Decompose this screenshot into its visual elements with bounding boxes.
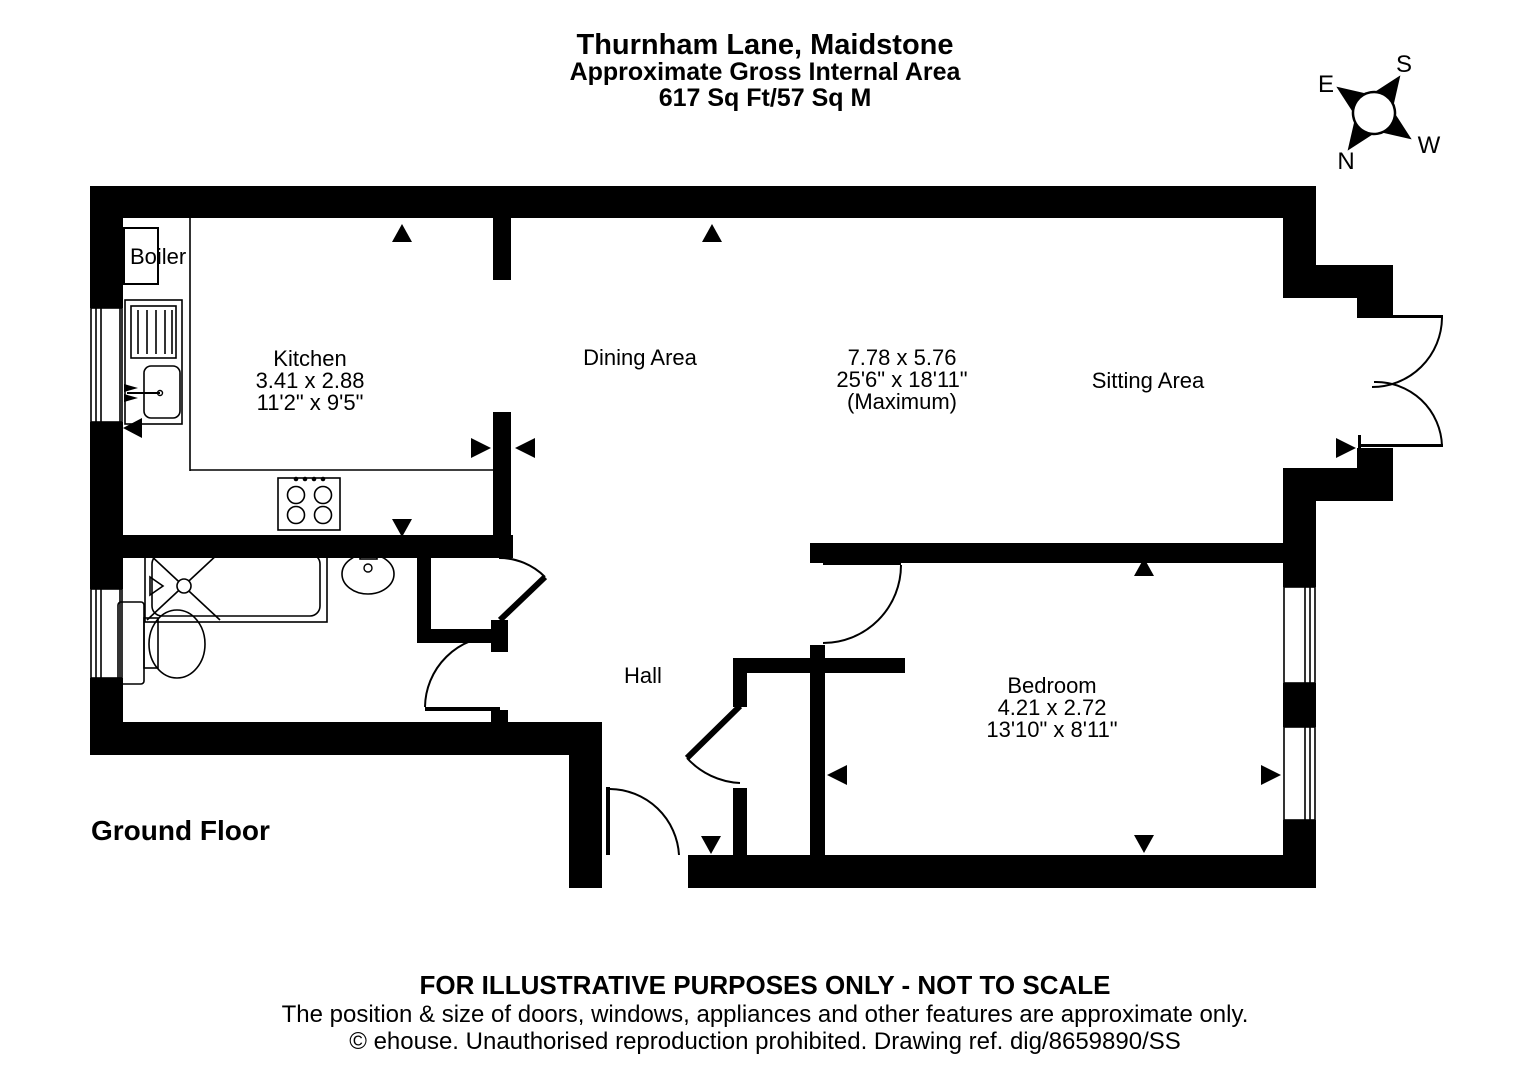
wall-segment	[1283, 468, 1393, 501]
wall-segment	[810, 543, 1285, 563]
sitting-area-label: Sitting Area	[1092, 368, 1205, 393]
measure-arrow-left-icon	[515, 438, 535, 458]
measure-arrow-down-icon	[392, 519, 412, 537]
page-subtitle: Approximate Gross Internal Area	[570, 58, 962, 86]
wall-segment	[569, 750, 602, 888]
wall-segment	[1283, 501, 1316, 587]
wall-segment	[733, 788, 747, 855]
title-block: Thurnham Lane, Maidstone Approximate Gro…	[570, 29, 962, 112]
measure-arrow-down-icon	[701, 836, 721, 854]
toilet	[118, 602, 205, 684]
wall-segment	[417, 545, 431, 643]
kitchen-sink	[124, 300, 182, 424]
bedroom-window-upper	[1284, 587, 1315, 683]
dining-area-label: Dining Area	[583, 345, 698, 370]
floorplan-page: Thurnham Lane, Maidstone Approximate Gro…	[0, 0, 1528, 1080]
wall-segment	[1283, 218, 1316, 265]
wall-segment	[1283, 820, 1316, 888]
entrance-door	[606, 787, 679, 855]
compass-west-label: W	[1418, 132, 1441, 159]
compass-rose: S E N W	[1310, 49, 1441, 177]
wall-segment	[491, 710, 508, 724]
footer-copyright-text: © ehouse. Unauthorised reproduction proh…	[349, 1028, 1181, 1055]
cupboard-door	[499, 558, 545, 620]
measure-arrow-up-icon	[702, 224, 722, 242]
wall-segment	[810, 645, 825, 855]
measure-arrow-up-icon	[392, 224, 412, 242]
page-title: Thurnham Lane, Maidstone	[576, 29, 953, 61]
kitchen-dim-imperial: 11'2" x 9'5"	[257, 390, 364, 415]
floorplan-drawing: Thurnham Lane, Maidstone Approximate Gro…	[0, 0, 1528, 1080]
room-labels: Kitchen 3.41 x 2.88 11'2" x 9'5" Dining …	[91, 345, 1205, 846]
door-hinge-mark	[1358, 435, 1361, 459]
compass-south-label: S	[1396, 51, 1412, 78]
bathroom-fixtures	[118, 548, 394, 684]
living-dim-note: (Maximum)	[847, 389, 957, 414]
compass-east-label: E	[1318, 71, 1334, 98]
wall-segment	[90, 186, 1316, 218]
wall-segment	[688, 855, 1316, 888]
interior-walls	[100, 218, 1285, 855]
hall-label: Hall	[624, 663, 662, 688]
measure-arrow-right-icon	[471, 438, 491, 458]
footer-block: FOR ILLUSTRATIVE PURPOSES ONLY - NOT TO …	[282, 970, 1249, 1055]
measure-arrow-left-icon	[827, 765, 847, 785]
kitchen-window	[91, 308, 122, 422]
wall-segment	[493, 412, 511, 535]
compass-north-label: N	[1337, 148, 1354, 175]
floor-name-label: Ground Floor	[91, 815, 270, 846]
measure-arrow-left-icon	[123, 418, 142, 438]
measure-arrow-right-icon	[1336, 438, 1356, 458]
hob	[278, 477, 340, 530]
footer-disclaimer-text: The position & size of doors, windows, a…	[282, 1001, 1249, 1028]
measure-arrow-right-icon	[1261, 765, 1281, 785]
wall-segment	[733, 658, 747, 707]
wall-segment	[1283, 265, 1393, 298]
bedroom-door	[823, 561, 901, 643]
wall-segment	[90, 722, 602, 755]
bedroom-dim-imperial: 13'10" x 8'11"	[986, 717, 1117, 742]
wall-segment	[1283, 683, 1316, 727]
wall-segment	[1357, 448, 1393, 468]
bathroom-door	[425, 636, 500, 711]
page-area: 617 Sq Ft/57 Sq M	[659, 84, 872, 112]
boiler-label: Boiler	[130, 244, 186, 269]
measure-arrow-down-icon	[1134, 835, 1154, 853]
french-doors	[1357, 315, 1443, 459]
bedroom-window-lower	[1284, 727, 1315, 820]
wall-segment	[90, 186, 123, 308]
hall-lobby-door	[687, 706, 740, 783]
footer-disclaimer-title: FOR ILLUSTRATIVE PURPOSES ONLY - NOT TO …	[420, 970, 1111, 1000]
wall-segment	[90, 422, 123, 589]
wall-segment	[493, 218, 511, 280]
